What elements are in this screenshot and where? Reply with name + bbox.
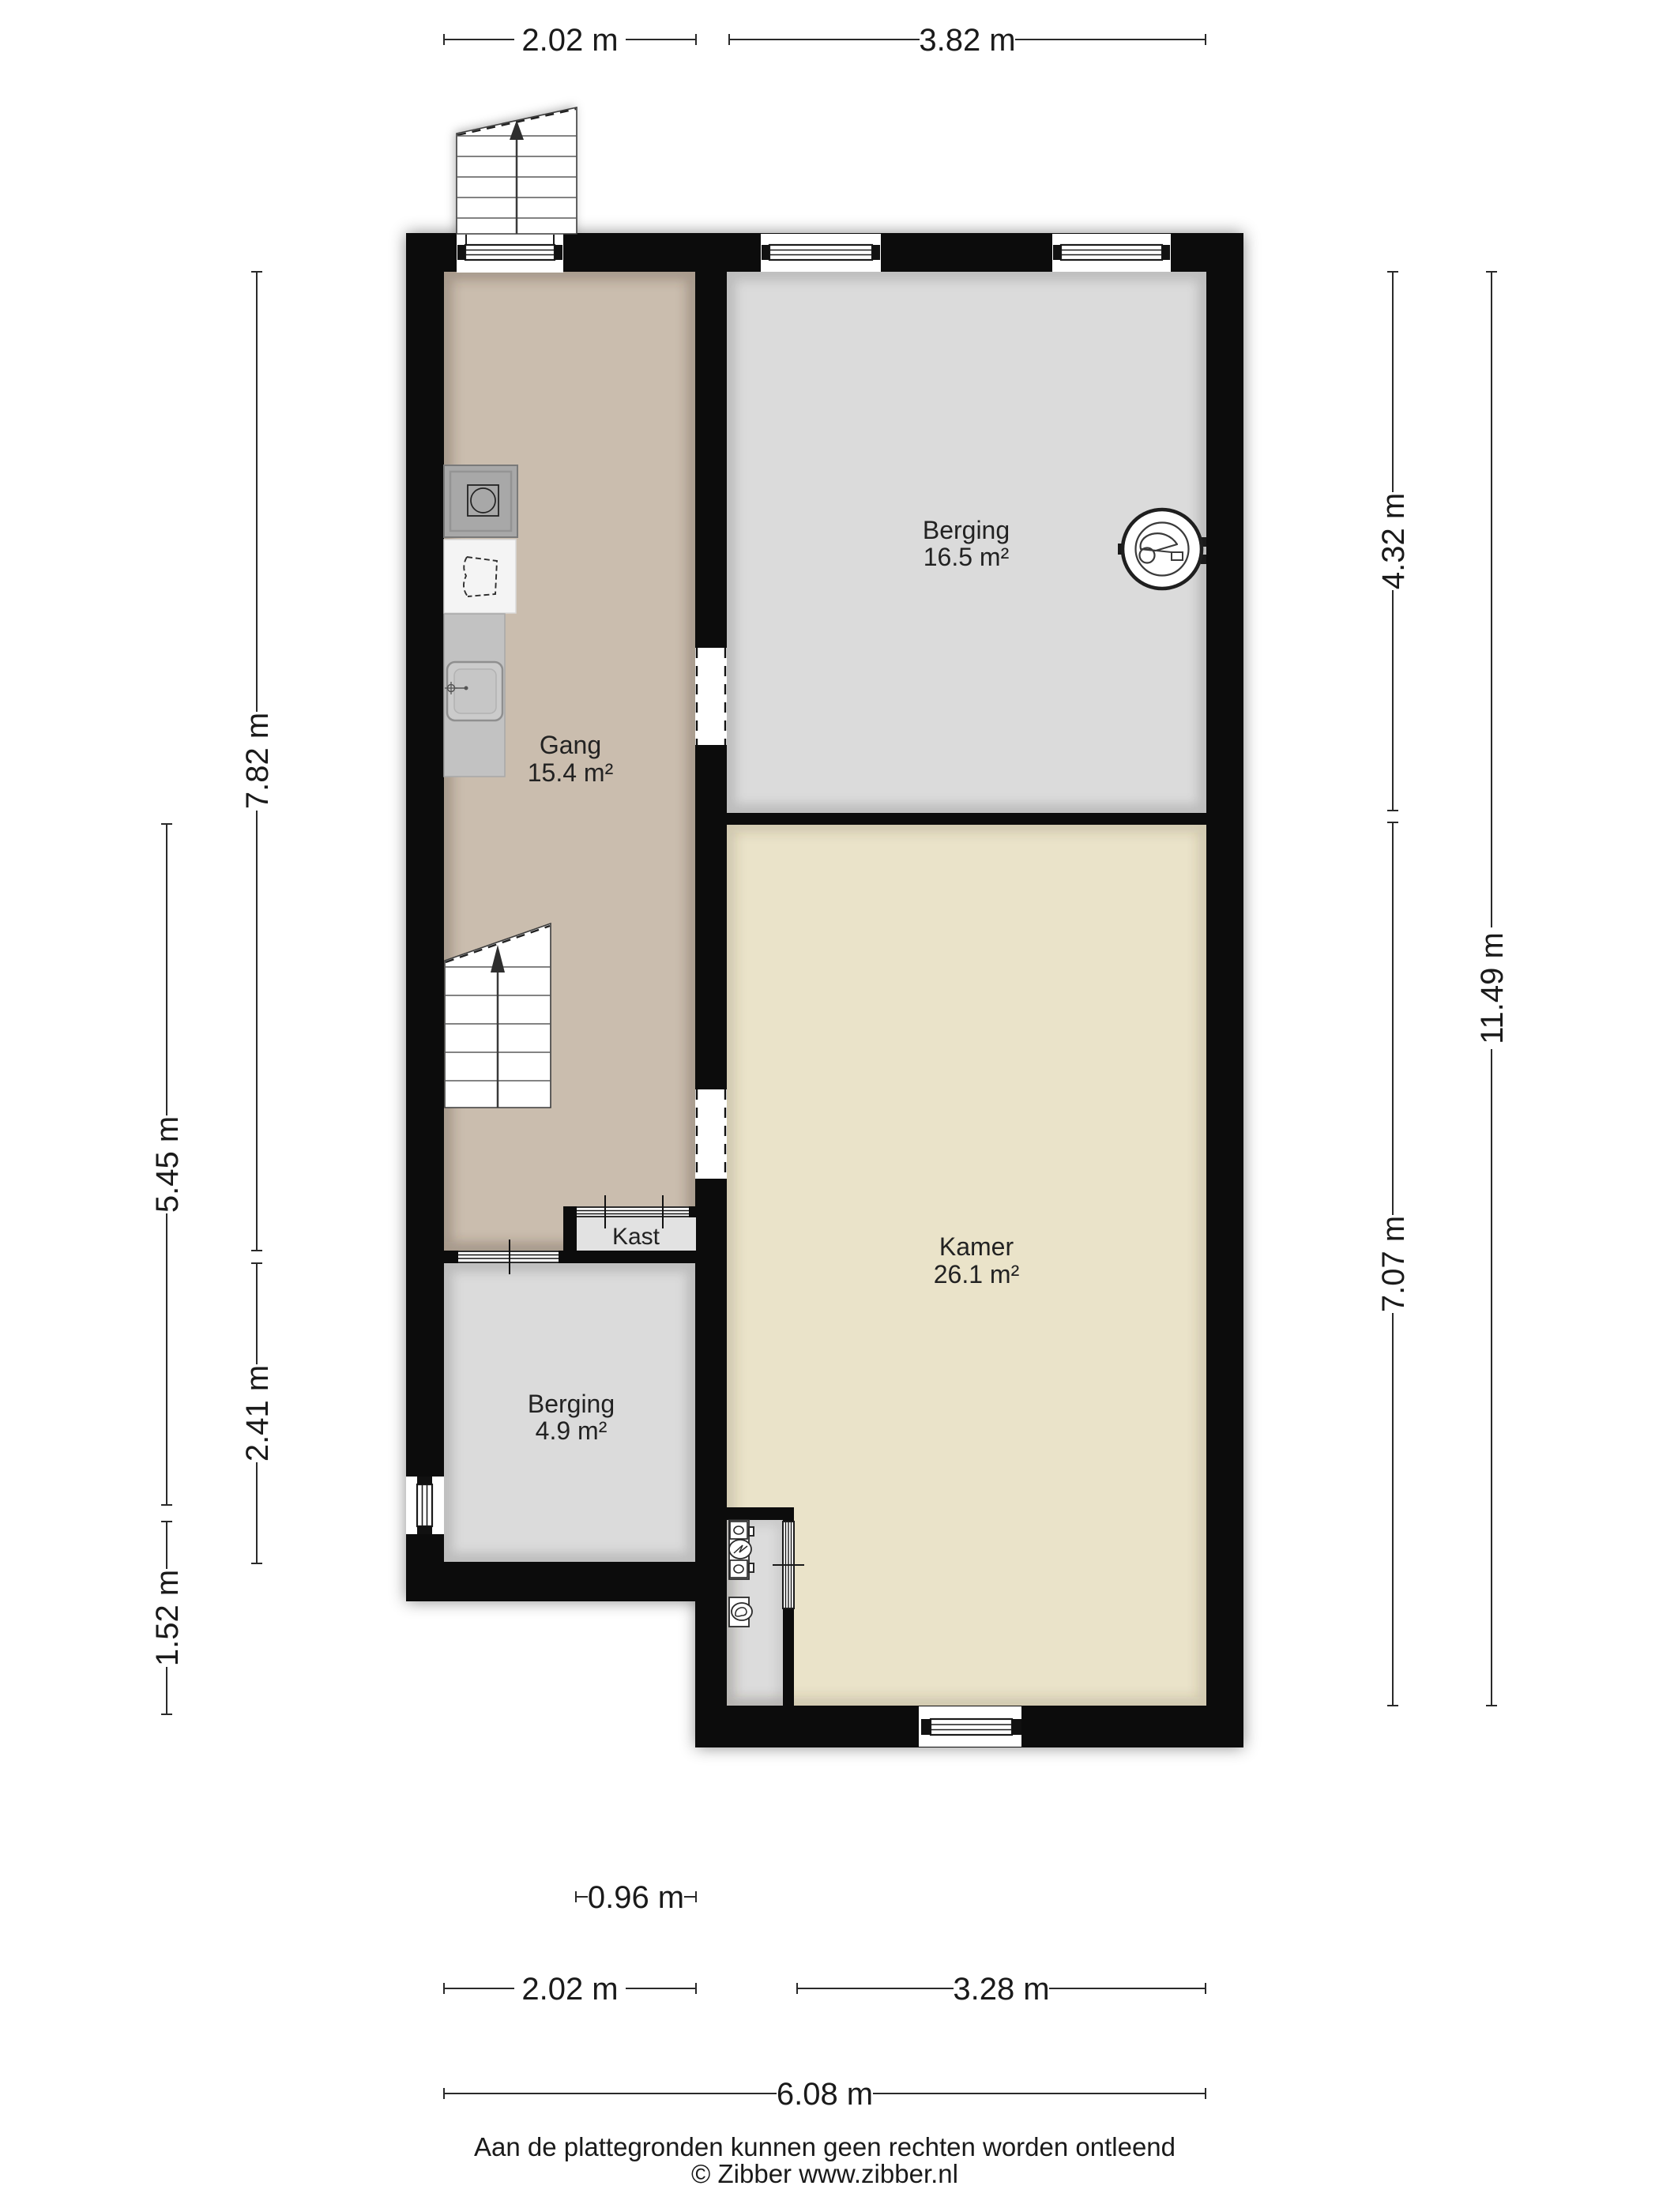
svg-text:Berging: Berging [528, 1390, 615, 1418]
svg-text:0.96 m: 0.96 m [588, 1880, 684, 1915]
svg-text:11.49 m: 11.49 m [1475, 932, 1510, 1044]
svg-text:Berging: Berging [923, 516, 1010, 544]
svg-text:26.1 m²: 26.1 m² [934, 1260, 1020, 1288]
svg-text:Kamer: Kamer [939, 1232, 1014, 1261]
svg-text:Aan de plattegronden kunnen ge: Aan de plattegronden kunnen geen rechten… [474, 2132, 1176, 2161]
svg-text:Gang: Gang [540, 731, 601, 759]
svg-text:Kast: Kast [612, 1224, 660, 1250]
svg-text:15.4 m²: 15.4 m² [528, 758, 614, 787]
svg-text:7.82 m: 7.82 m [240, 713, 275, 809]
svg-text:3.28 m: 3.28 m [953, 1972, 1049, 2007]
svg-text:2.02 m: 2.02 m [521, 1972, 618, 2007]
svg-text:7.07 m: 7.07 m [1376, 1216, 1411, 1312]
svg-text:16.5 m²: 16.5 m² [924, 543, 1010, 571]
svg-text:2.41 m: 2.41 m [240, 1365, 275, 1461]
svg-text:3.82 m: 3.82 m [919, 23, 1015, 58]
svg-text:4.9 m²: 4.9 m² [536, 1416, 608, 1445]
svg-text:2.02 m: 2.02 m [521, 23, 618, 58]
svg-text:5.45 m: 5.45 m [150, 1116, 185, 1213]
svg-text:6.08 m: 6.08 m [777, 2077, 873, 2112]
svg-text:1.52 m: 1.52 m [150, 1570, 185, 1666]
svg-text:4.32 m: 4.32 m [1376, 493, 1411, 589]
svg-text:© Zibber www.zibber.nl: © Zibber www.zibber.nl [691, 2159, 958, 2188]
